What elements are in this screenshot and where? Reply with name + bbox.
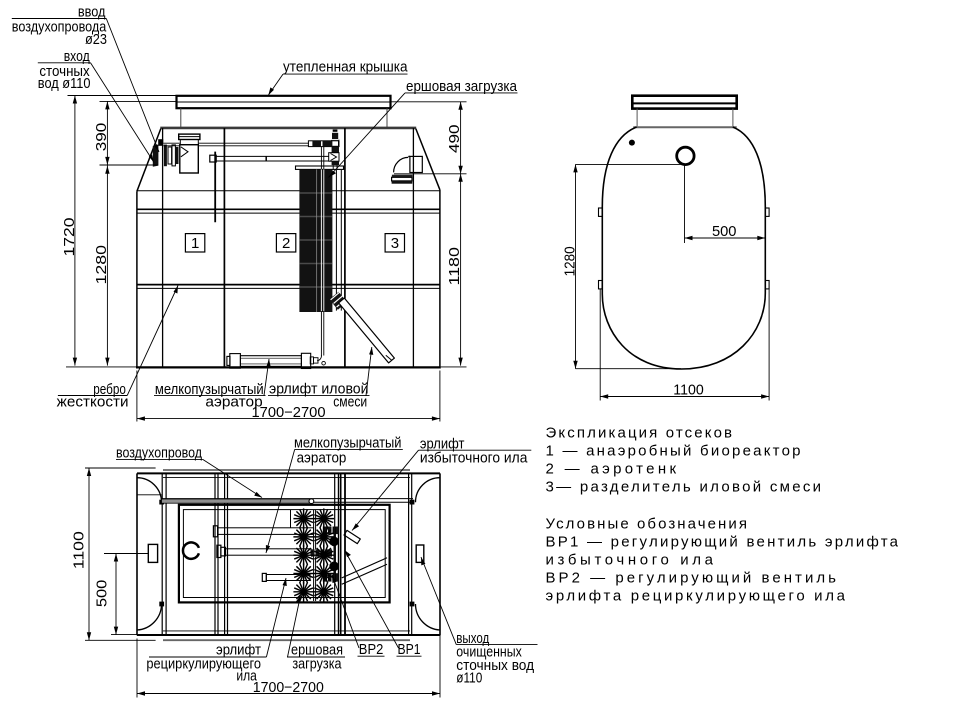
svg-text:ила: ила <box>236 668 257 685</box>
svg-text:загрузка: загрузка <box>292 656 342 673</box>
svg-text:490: 490 <box>446 125 463 154</box>
svg-text:ø23: ø23 <box>85 31 107 48</box>
svg-text:1100: 1100 <box>673 382 704 399</box>
svg-text:жесткости: жесткости <box>57 394 129 411</box>
svg-text:вод ø110: вод ø110 <box>38 75 91 92</box>
svg-text:1720: 1720 <box>61 218 78 257</box>
svg-text:воздухопровод: воздухопровод <box>116 444 202 461</box>
svg-text:ершовая загрузка: ершовая загрузка <box>406 78 518 95</box>
svg-text:утепленная крышка: утепленная крышка <box>283 59 408 76</box>
svg-text:аэратор: аэратор <box>297 450 347 467</box>
svg-text:390: 390 <box>93 123 110 152</box>
svg-text:ВР1 — регулирующий вентиль эрл: ВР1 — регулирующий вентиль эрлифта <box>546 534 899 551</box>
svg-text:1: 1 <box>191 235 199 252</box>
svg-text:эрлифта рециркулирующего ила: эрлифта рециркулирующего ила <box>546 588 846 605</box>
svg-text:3: 3 <box>391 235 399 252</box>
svg-text:1280: 1280 <box>93 245 110 285</box>
svg-text:500: 500 <box>712 223 737 240</box>
svg-text:Экспликация отсеков: Экспликация отсеков <box>546 425 733 442</box>
svg-text:1100: 1100 <box>71 531 88 569</box>
svg-text:избыточного ила: избыточного ила <box>546 552 714 569</box>
svg-text:3— разделитель иловой смеси: 3— разделитель иловой смеси <box>546 479 822 496</box>
svg-text:1180: 1180 <box>446 247 463 286</box>
svg-text:2: 2 <box>282 235 290 252</box>
svg-text:1700−2700: 1700−2700 <box>253 680 324 696</box>
svg-text:ø110: ø110 <box>456 670 482 687</box>
svg-text:ВР1: ВР1 <box>398 641 421 658</box>
svg-text:1280: 1280 <box>561 246 578 276</box>
svg-text:500: 500 <box>93 580 110 608</box>
svg-text:ВР2: ВР2 <box>359 641 384 658</box>
svg-text:избыточного ила: избыточного ила <box>420 450 528 467</box>
